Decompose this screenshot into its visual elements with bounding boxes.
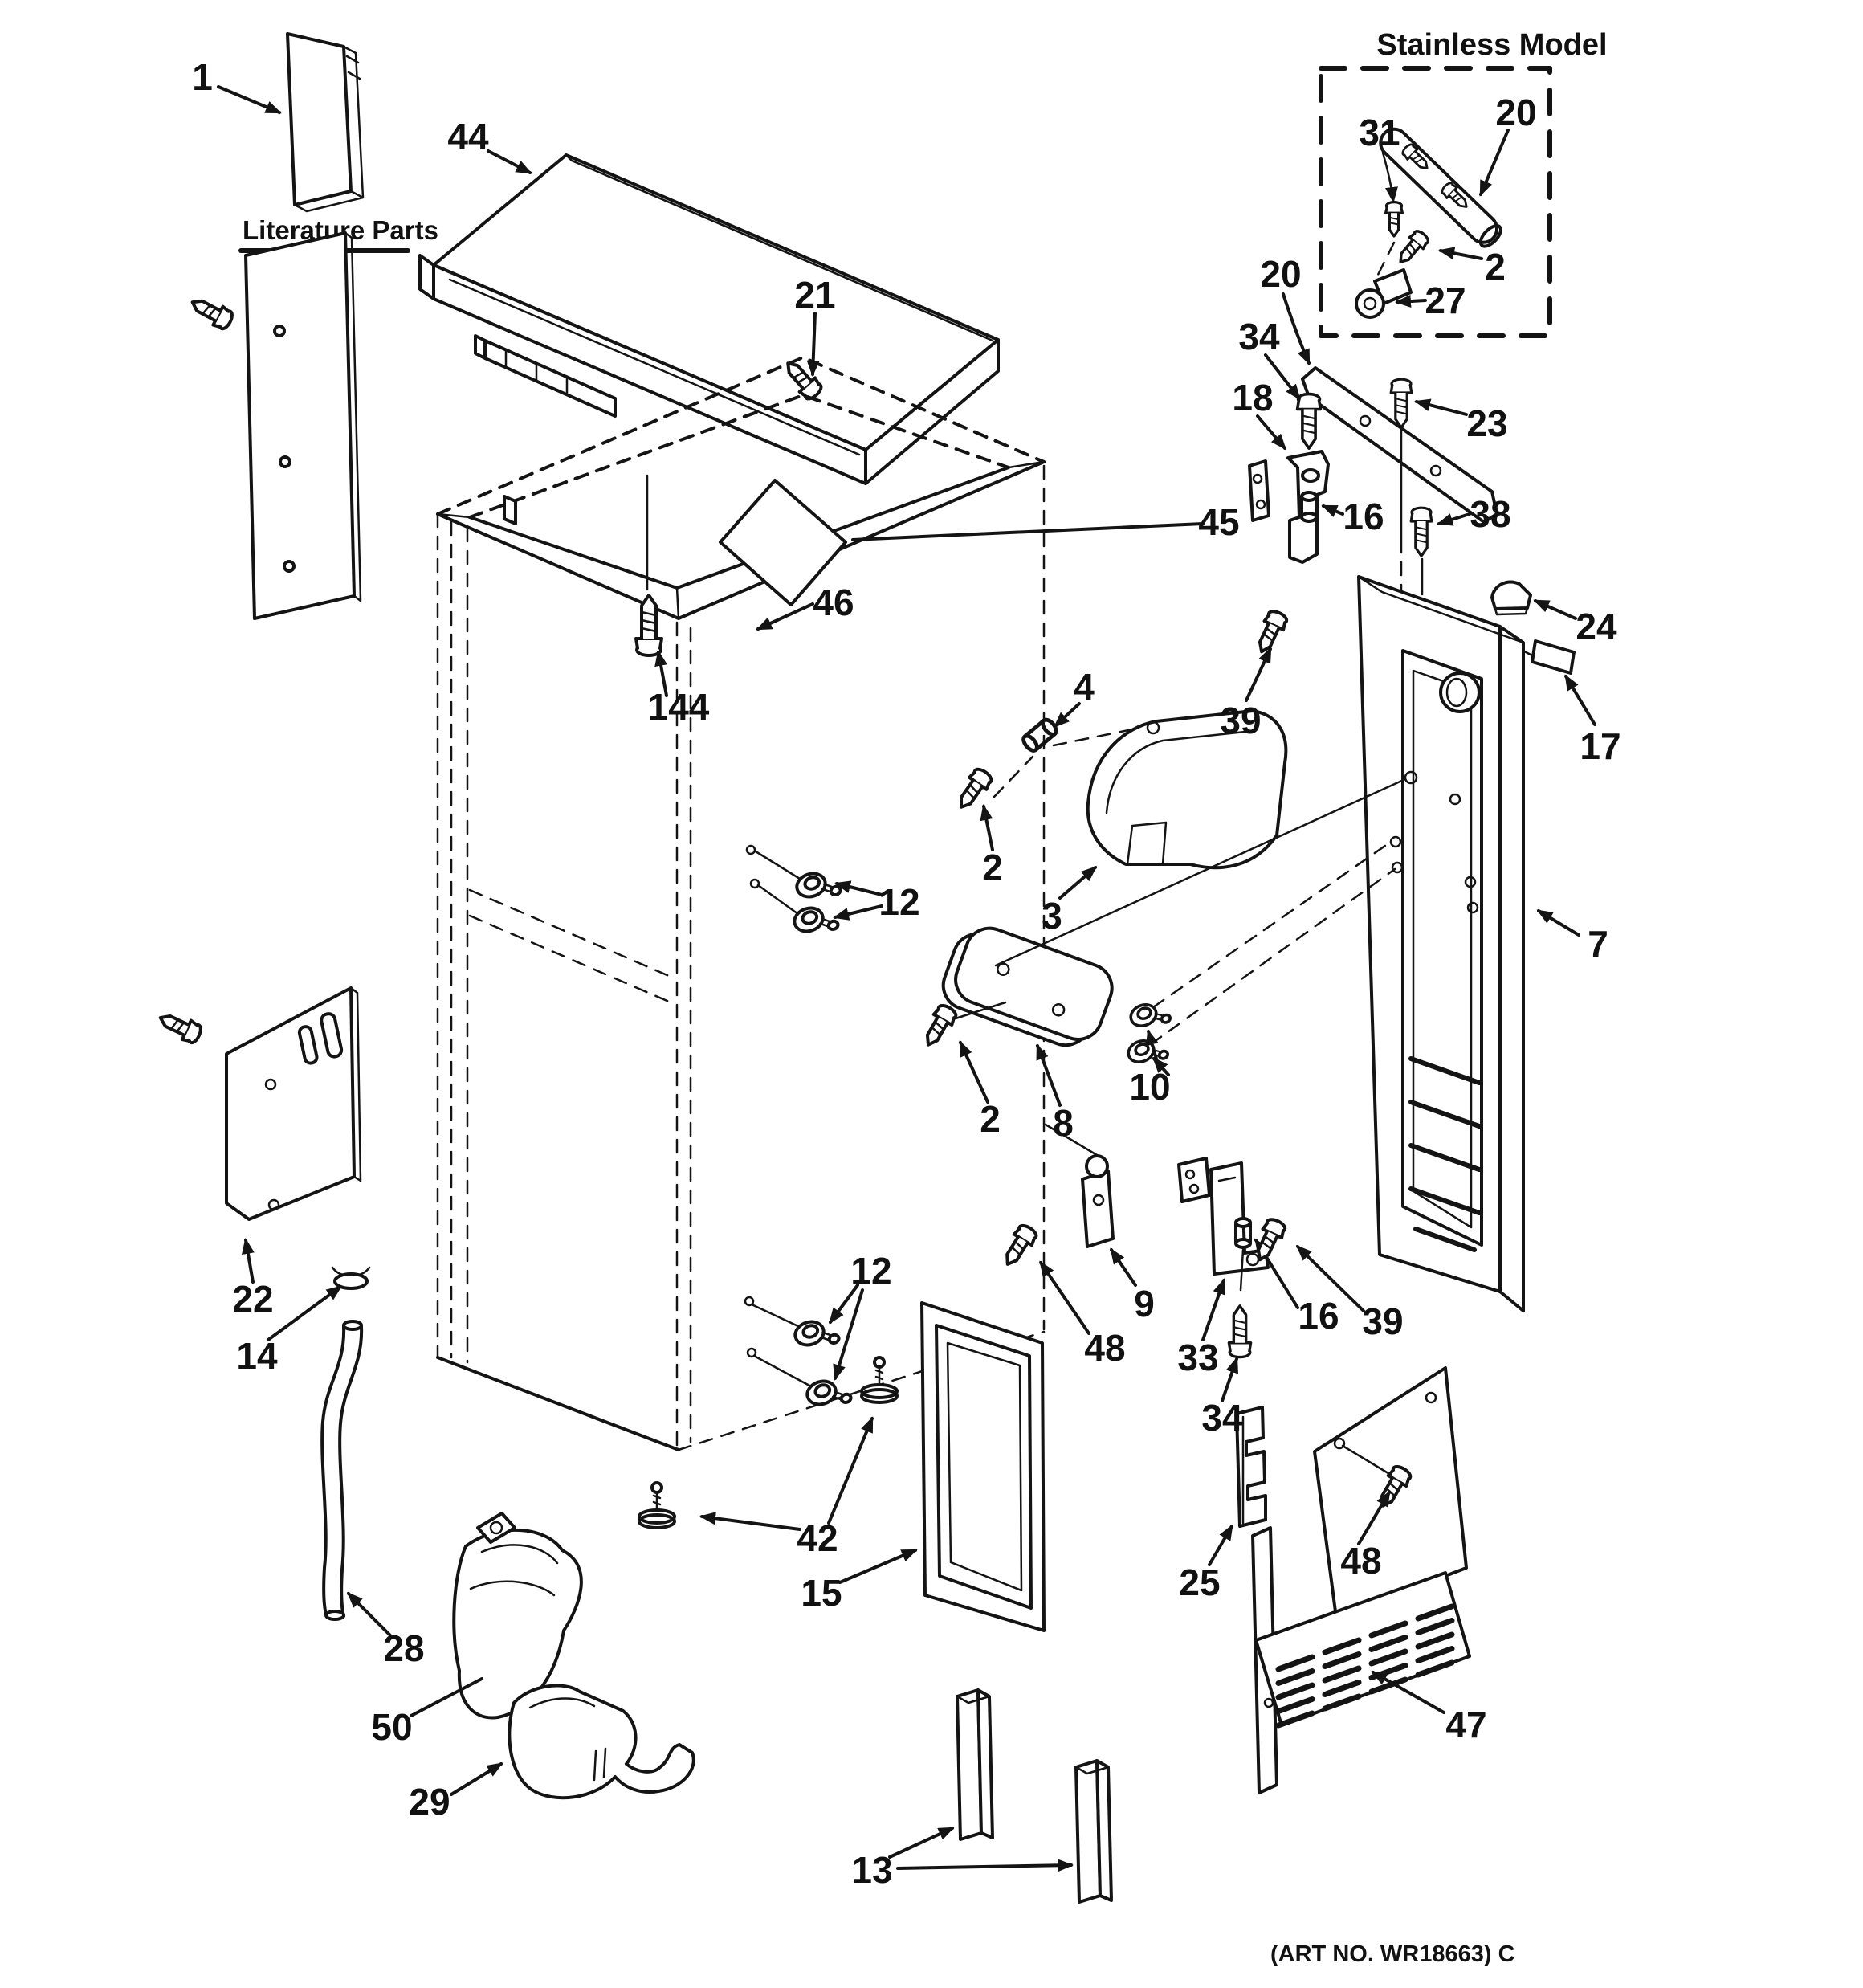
callout-17-16: 17 (1580, 725, 1620, 767)
callout-14-28: 14 (236, 1335, 278, 1377)
screw-34-top (1298, 394, 1321, 448)
leader-22 (246, 1240, 253, 1282)
corner-strip-13-right (1076, 1761, 1111, 1902)
leader-12-lower-b (835, 1290, 862, 1378)
callout-24-14: 24 (1576, 606, 1617, 647)
stainless-model-title: Stainless Model (1376, 28, 1607, 62)
literature-booklet (287, 34, 363, 211)
leader-17 (1566, 676, 1595, 725)
leader-42-b (702, 1517, 800, 1529)
screw-2-stainless (1394, 228, 1431, 267)
leader-20-trim (1283, 294, 1309, 363)
callout-12-22: 12 (879, 881, 919, 923)
callout-2-6: 2 (1485, 246, 1506, 288)
leader-12-upper-a (837, 884, 882, 895)
callout-23-10: 23 (1466, 402, 1507, 444)
callout-4-19: 4 (1074, 666, 1095, 708)
leader-7 (1539, 911, 1579, 935)
callout-9-30: 9 (1134, 1283, 1155, 1325)
leader-27 (1397, 300, 1425, 302)
callout-34-35: 34 (1201, 1397, 1243, 1439)
callout-16-12: 16 (1343, 496, 1384, 537)
callout-25-38: 25 (1179, 1561, 1220, 1603)
leader-2-pad (960, 1043, 988, 1102)
leader-38 (1439, 514, 1470, 524)
leveling-leg-42-a (862, 1357, 897, 1402)
door-7 (1359, 577, 1523, 1311)
leader-23 (1417, 402, 1466, 414)
leader-29 (451, 1764, 501, 1794)
handle-clamp-27 (1356, 270, 1411, 317)
screw-23 (1391, 379, 1412, 427)
callout-15-37: 15 (801, 1572, 842, 1614)
leader-25 (1209, 1526, 1232, 1565)
callout-29-42: 29 (409, 1781, 450, 1823)
leader-12-upper-b (835, 906, 882, 917)
leader-18 (1258, 416, 1285, 448)
callout-12-29: 12 (850, 1250, 891, 1292)
callout-144-18: 144 (648, 686, 710, 728)
callout-7-23: 7 (1588, 923, 1608, 965)
screws-10 (1125, 842, 1395, 1071)
callout-42-36: 42 (797, 1517, 838, 1559)
door-gasket-15 (922, 1303, 1044, 1631)
callout-38-11: 38 (1470, 493, 1510, 535)
callout-44-1: 44 (447, 116, 489, 157)
exploded-view-diagram: Literature Parts (0, 0, 1863, 1988)
screws-12-upper (756, 851, 842, 941)
callout-48-39: 48 (1340, 1540, 1381, 1582)
callout-34-8: 34 (1238, 316, 1280, 357)
hinge-plate-small (1249, 461, 1269, 520)
callout-10-26: 10 (1129, 1066, 1170, 1108)
screw-48-hinge (999, 1223, 1039, 1270)
top-lid-44 (420, 155, 998, 484)
callout-18-9: 18 (1232, 377, 1273, 418)
screw-2-handle (952, 766, 994, 813)
leader-8 (1037, 1046, 1060, 1105)
hinge-cap-24 (1492, 582, 1531, 614)
leader-20-tube (1481, 130, 1508, 194)
screw-rear-panel (188, 293, 235, 332)
screws-12-lower (752, 1304, 852, 1414)
handle-pad-8 (936, 918, 1119, 1055)
drain-tube-28 (322, 1321, 361, 1619)
leader-1 (218, 87, 279, 112)
callout-2-24: 2 (980, 1098, 1001, 1140)
leader-16-top (1323, 506, 1343, 514)
callout-27-7: 27 (1425, 280, 1466, 321)
screw-2-pad (919, 1002, 959, 1050)
leader-39-upper (1246, 649, 1270, 700)
callout-47-43: 47 (1445, 1704, 1486, 1745)
callout-28-40: 28 (383, 1627, 424, 1669)
rear-left-panel (246, 233, 361, 618)
leader-34-lower (1222, 1359, 1237, 1401)
callout-2-20: 2 (982, 847, 1003, 888)
leader-31-27 (1376, 243, 1394, 278)
leader-2-handle (984, 806, 993, 850)
leader-14 (268, 1287, 340, 1340)
parts-diagram-page: Literature Parts (0, 0, 1863, 1988)
callout-45-13: 45 (1198, 501, 1239, 543)
leader-44 (488, 151, 530, 173)
leader-15 (840, 1550, 915, 1582)
callout-46-17: 46 (813, 582, 854, 623)
leader-2-stainless (1441, 251, 1482, 259)
leader-9 (1111, 1250, 1135, 1285)
leader-13-a (890, 1828, 952, 1857)
leader-45 (853, 524, 1203, 540)
callout-8-25: 8 (1053, 1102, 1074, 1144)
leader-3 (1060, 867, 1095, 898)
spacer-4 (1021, 717, 1058, 753)
access-panel-22 (226, 988, 361, 1219)
mount-plate-33-small (1179, 1158, 1209, 1202)
art-no-footer: (ART NO. WR18663) C (1270, 1941, 1515, 1967)
callout-39-32: 39 (1362, 1300, 1403, 1342)
screw-34-lower (1229, 1306, 1250, 1357)
dispenser-cap-29 (509, 1685, 693, 1798)
leveling-leg-42-b (639, 1483, 675, 1528)
callout-20-3: 20 (1260, 253, 1301, 295)
callout-13-44: 13 (851, 1849, 892, 1891)
callout-21-2: 21 (794, 274, 835, 316)
leader-46 (758, 604, 813, 629)
badge-plate-17 (1532, 641, 1574, 673)
leader-33 (1203, 1280, 1224, 1340)
callout-31-4: 31 (1359, 112, 1400, 153)
screw-38 (1411, 508, 1432, 556)
callout-3-21: 3 (1042, 895, 1062, 937)
leader-13-b (898, 1865, 1071, 1868)
callout-33-34: 33 (1177, 1337, 1218, 1378)
grommet-14 (332, 1268, 369, 1288)
screw-144 (636, 595, 662, 655)
callout-48-33: 48 (1084, 1327, 1125, 1369)
corner-strip-13-left (957, 1690, 993, 1839)
screw-access-panel (156, 1008, 203, 1045)
screw-31 (1386, 202, 1403, 236)
callout-16-31: 16 (1298, 1295, 1339, 1337)
leader-48-hinge (1041, 1263, 1089, 1333)
callout-20-5: 20 (1495, 92, 1536, 133)
callout-22-27: 22 (232, 1278, 273, 1320)
leader-24 (1535, 601, 1576, 618)
callout-1-0: 1 (192, 56, 213, 98)
callout-50-41: 50 (371, 1706, 412, 1748)
callout-39-15: 39 (1220, 700, 1261, 741)
leader-42-a (829, 1419, 872, 1523)
